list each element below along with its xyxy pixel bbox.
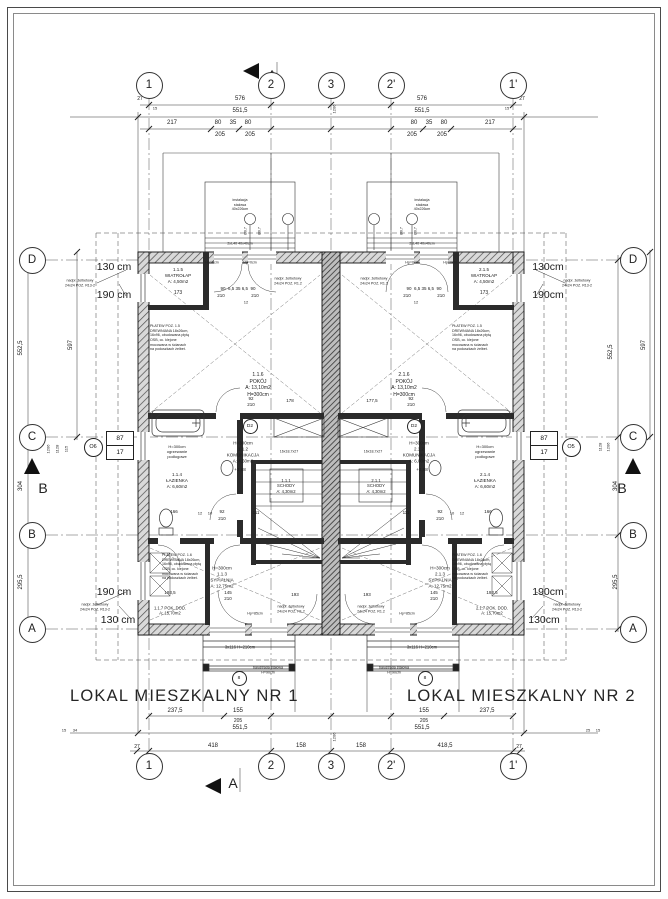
- height-contour-label: 130 cm: [101, 614, 135, 628]
- dimension-label: 237,5: [167, 708, 182, 716]
- room-label: 1.1.4 ŁAZIENKA A: 6,60m2: [166, 472, 188, 490]
- annotation-label: balustrada stalowa H=90cm: [253, 665, 283, 674]
- dimension-label: 576: [417, 96, 427, 104]
- dimension-label: 90 6,5 35 6,5 90: [406, 286, 441, 292]
- dimension-label: 597: [68, 340, 76, 350]
- room-label: H=300cm 2.1.2 KOMUNIKACJA A: 6,00m2: [403, 440, 436, 463]
- dimension-label: 158: [296, 743, 306, 751]
- room-label: H=300cm 2.1.3 SYPIALNIA A: 12,75m2: [428, 565, 451, 588]
- dimension-label: 210: [224, 596, 232, 602]
- dimension-label: 193,5: [486, 590, 497, 596]
- axis-marker-top-2: 2: [258, 72, 285, 99]
- axis-marker-right-D: D: [620, 247, 647, 274]
- dimension-label: 12: [460, 510, 464, 515]
- dimension-label: 210: [218, 516, 226, 522]
- axis-marker-bottom-3: 3: [318, 753, 345, 780]
- dimension-label: 12: [244, 299, 248, 304]
- axis-marker-left-C: C: [19, 424, 46, 451]
- dimension-label: 193: [291, 592, 299, 598]
- dimension-label: 92: [219, 509, 224, 515]
- dimension-label: 35: [426, 120, 433, 128]
- room-label: 1.1.5 WIATROŁAP A: 4,50m2: [165, 267, 191, 285]
- dimension-label: 3x116 H=210cm: [225, 644, 255, 649]
- dimension-label: 2xL40 40x40cm: [227, 242, 252, 247]
- room-label: 2.1.1 SCHODY A: 4,30m2: [366, 478, 385, 494]
- dimension-label: Hp=0cm: [405, 261, 418, 266]
- window-tag-values: 8717: [530, 431, 558, 460]
- dimension-label: 27: [516, 744, 522, 751]
- dimension-label: 145: [430, 590, 438, 596]
- dimension-label: 16x18,7x27: [364, 450, 383, 455]
- annotation-label: PŁATEW POZ. 1.5 DREWNIANA 18x26cm, 16x96…: [150, 324, 189, 352]
- dimension-label: 10: [208, 510, 212, 515]
- dimension-label: Hp=0cm: [243, 261, 256, 266]
- dimension-label: 12: [414, 299, 418, 304]
- dimension-label: 193,5: [164, 590, 175, 596]
- dimension-label: 210: [217, 293, 225, 299]
- annotation-label: nadpr. żelbetowy 24x24 POZ. R1.2: [277, 604, 305, 613]
- axis-marker-left-B: B: [19, 522, 46, 549]
- apartment-2-title: LOKAL MIESZKALNY NR 2: [407, 687, 636, 706]
- apartment-1-title: LOKAL MIESZKALNY NR 1: [70, 687, 299, 706]
- dimension-label: 551,5: [232, 108, 247, 116]
- element-tag-circle: 8: [232, 671, 247, 686]
- room-label: 1.1.6 POKÓJ A: 13,10m2 H=300cm: [245, 372, 271, 398]
- dimension-label: Hp=0cm: [443, 261, 456, 266]
- dimension-label: 15: [62, 727, 66, 732]
- dimension-label: 551,5: [232, 725, 247, 733]
- dimension-label: 193: [363, 592, 371, 598]
- dimension-label: 34: [73, 727, 77, 732]
- annotation-label: nadpr. żelbetowy 24x24 POZ. R1.2: [360, 276, 388, 285]
- dimension-label: 35: [230, 120, 237, 128]
- room-label: 2.1.7 POK. DOD. A: 15,70m2: [476, 606, 508, 617]
- dimension-label: 205: [215, 132, 225, 140]
- dimension-label: 210: [247, 402, 255, 408]
- dimension-label: 1128: [54, 445, 59, 454]
- dimension-label: 1206: [331, 105, 336, 114]
- height-contour-label: 190 cm: [97, 289, 131, 303]
- dimension-label: +2,88: [234, 467, 245, 473]
- dimension-label: 166: [170, 509, 178, 515]
- axis-marker-bottom-2p: 2': [378, 753, 405, 780]
- dimension-label: 552,5: [18, 340, 26, 355]
- dimension-label: 80: [245, 120, 252, 128]
- dimension-label: 552,5: [608, 344, 616, 359]
- dimension-label: 1206: [331, 733, 336, 742]
- dimension-label: 178: [286, 398, 294, 404]
- dimension-label: 3x116 H=210cm: [407, 644, 437, 649]
- dimension-label: Ø0,7: [244, 227, 249, 235]
- dimension-label: 155: [233, 708, 243, 716]
- dimension-label: 418: [208, 743, 218, 751]
- room-label: 2.1.6 POKÓJ A: 13,10m2 H=300cm: [391, 372, 417, 398]
- dimension-label: 16x18,7x27: [280, 450, 299, 455]
- dimension-label: 237,5: [479, 708, 494, 716]
- room-label: H=300cm ogrzewanie podłogowe: [167, 444, 187, 460]
- dimension-label: 92: [437, 509, 442, 515]
- dimension-label: 205: [420, 718, 428, 725]
- dimension-label: 217: [167, 120, 177, 128]
- dimension-label: Hp=0cm: [205, 261, 218, 266]
- axis-marker-top-1p: 1': [500, 72, 527, 99]
- dimension-label: 205: [407, 132, 417, 140]
- dimension-label: 15: [505, 105, 509, 110]
- annotation-label: instalacja stalowa 40x226cm: [414, 198, 431, 212]
- dimension-label: 145: [224, 590, 232, 596]
- dimension-label: 295,5: [613, 574, 621, 589]
- dimension-label: 115: [63, 446, 68, 452]
- axis-marker-bottom-1p: 1': [500, 753, 527, 780]
- room-label: 2.1.5 WIATROŁAP A: 4,50m2: [471, 267, 497, 285]
- dimension-label: 210: [251, 293, 259, 299]
- section-label: A: [228, 775, 237, 791]
- axis-marker-right-C: C: [620, 424, 647, 451]
- height-contour-label: 190cm: [532, 586, 564, 600]
- window-tag-circle: O5: [562, 438, 581, 457]
- annotation-label: PŁATEW POZ. 1.5 DREWNIANA 18x26cm, 16x96…: [452, 324, 491, 352]
- floor-plan-canvas: LOKAL MIESZKALNY NR 1 LOKAL MIESZKALNY N…: [0, 0, 668, 899]
- annotation-label: PŁATEW POZ. 1.6 DREWNIANA 18x26cm, 16x96…: [162, 553, 201, 581]
- height-contour-label: 130cm: [528, 614, 560, 628]
- window-tag-values: 8717: [106, 431, 134, 460]
- dimension-label: 210: [436, 516, 444, 522]
- dimension-label: 597: [641, 340, 649, 350]
- dimension-label: 210: [407, 402, 415, 408]
- dimension-label: 90 6,5 35 6,5 90: [220, 286, 255, 292]
- dimension-label: 177,5: [366, 398, 377, 404]
- dimension-label: 80: [215, 120, 222, 128]
- dimension-label: +2,88: [416, 467, 427, 473]
- room-label: H=300cm 1.1.3 SYPIALNIA A: 12,75m2: [210, 565, 233, 588]
- axis-marker-top-3: 3: [318, 72, 345, 99]
- dimension-label: 25: [586, 727, 590, 732]
- dimension-label: 12: [198, 510, 202, 515]
- dimension-label: 158: [356, 743, 366, 751]
- annotation-label: nadpr. żelbetowy 24x24 POZ. R1.2: [274, 276, 302, 285]
- dimension-label: Ø0,7: [258, 227, 263, 235]
- room-label: 1.1.7 POK. DOD. A: 15,70m2: [154, 606, 186, 617]
- dimension-label: 173: [174, 290, 182, 297]
- axis-marker-bottom-1: 1: [136, 753, 163, 780]
- axis-marker-right-B: B: [620, 522, 647, 549]
- axis-marker-top-1: 1: [136, 72, 163, 99]
- dimension-label: 166: [484, 509, 492, 515]
- room-label: 2.1.4 ŁAZIENKA A: 6,60m2: [474, 472, 496, 490]
- axis-marker-left-A: A: [19, 616, 46, 643]
- dimension-label: 205: [234, 718, 242, 725]
- section-label: B: [38, 480, 47, 496]
- room-label: H=300cm 1.1.2 KOMUNIKACJA A: 4,60m2: [227, 440, 260, 463]
- dimension-label: 111: [403, 510, 410, 516]
- section-label: B: [617, 480, 626, 496]
- dimension-label: 551,5: [414, 725, 429, 733]
- dimension-label: 2xL40 40x40cm: [409, 242, 434, 247]
- dimension-label: 173: [480, 290, 488, 297]
- dimension-label: Hp=85cm: [247, 612, 262, 617]
- dimension-label: 1206: [45, 445, 50, 454]
- annotation-label: balustrada stalowa H=90cm: [379, 665, 409, 674]
- axis-marker-left-D: D: [19, 247, 46, 274]
- dimension-label: Ø0,7: [414, 227, 419, 235]
- height-contour-label: 190cm: [532, 289, 564, 303]
- annotation-label: nadpr. żelbetowy 24x24 POZ. R13-2: [562, 278, 592, 287]
- dimension-label: 418,5: [437, 743, 452, 751]
- annotation-label: nadpr. żelbetowy 24x24 POZ. R13-2: [552, 602, 582, 611]
- annotation-label: nadpr. żelbetowy 24x24 POZ. R1.2: [357, 604, 385, 613]
- dimension-label: Hp=85cm: [399, 612, 414, 617]
- dimension-label: 576: [235, 96, 245, 104]
- dimension-label: 210: [403, 293, 411, 299]
- annotation-label: instalacja stalowa 40x226cm: [232, 198, 249, 212]
- dimension-label: 1206: [605, 443, 610, 452]
- axis-marker-top-2p: 2': [378, 72, 405, 99]
- height-contour-label: 190 cm: [97, 586, 131, 600]
- dimension-label: 27: [134, 744, 140, 751]
- annotation-label: nadpr. żelbetowy 24x24 POZ. R13-2: [65, 278, 95, 287]
- dimension-label: 111: [253, 510, 260, 516]
- room-label: 1.1.1 SCHODY A: 4,30m2: [276, 478, 295, 494]
- dimension-label: 80: [441, 120, 448, 128]
- window-tag-circle: O6: [84, 438, 103, 457]
- dimension-label: 210: [437, 293, 445, 299]
- dimension-label: 205: [245, 132, 255, 140]
- room-label: H=300cm ogrzewanie podłogowe: [475, 444, 495, 460]
- dimension-label: 1128: [597, 443, 602, 452]
- dimension-label: 15: [153, 105, 157, 110]
- dimension-label: 205: [437, 132, 447, 140]
- axis-marker-right-A: A: [620, 616, 647, 643]
- dimension-label: 80: [411, 120, 418, 128]
- dimension-label: Ø0,7: [400, 227, 405, 235]
- annotation-label: nadpr. żelbetowy 24x24 POZ. R13-2: [80, 602, 110, 611]
- dimension-label: 295,5: [18, 574, 26, 589]
- height-contour-label: 130cm: [532, 261, 564, 275]
- dimension-label: 304: [18, 481, 26, 491]
- dimension-label: 15: [596, 727, 600, 732]
- height-contour-label: 130 cm: [97, 261, 131, 275]
- drawing-page: LOKAL MIESZKALNY NR 1 LOKAL MIESZKALNY N…: [0, 0, 668, 899]
- dimension-label: 10: [450, 510, 454, 515]
- element-tag-circle: 8: [418, 671, 433, 686]
- annotation-label: PŁATEW POZ. 1.6 DREWNIANA 18x26cm, 16x96…: [452, 553, 491, 581]
- dimension-label: 551,5: [414, 108, 429, 116]
- element-tag-circle: D2: [243, 419, 258, 434]
- dimension-label: 217: [485, 120, 495, 128]
- dimension-label: 210: [430, 596, 438, 602]
- element-tag-circle: D2: [407, 419, 422, 434]
- axis-marker-bottom-2: 2: [258, 753, 285, 780]
- dimension-label: 155: [419, 708, 429, 716]
